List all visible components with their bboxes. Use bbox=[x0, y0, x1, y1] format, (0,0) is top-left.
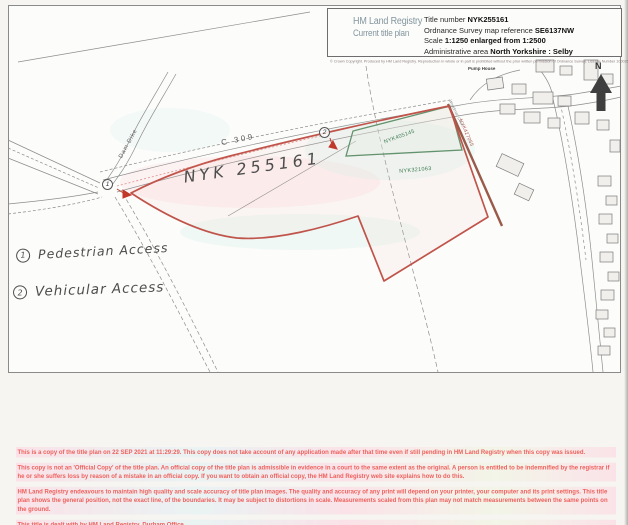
pump-house-label: Pump House bbox=[468, 66, 495, 71]
os-ref-value: SE6137NW bbox=[535, 26, 574, 35]
access-marker-1: 1 bbox=[102, 179, 113, 190]
header-panel: HM Land Registry Current title plan Titl… bbox=[327, 8, 622, 57]
notice-not-official-copy: This copy is not an 'Official Copy' of t… bbox=[16, 462, 616, 481]
title-number-row: Title number NYK255161 bbox=[424, 15, 574, 26]
brand-name: HM Land Registry bbox=[353, 16, 422, 28]
north-label: N bbox=[595, 61, 602, 71]
legend-2-number: 2 bbox=[13, 285, 27, 299]
access-marker-2: 2 bbox=[319, 127, 330, 138]
title-fields: Title number NYK255161 Ordnance Survey m… bbox=[424, 15, 574, 57]
scale-value: 1:1250 enlarged from 1:2500 bbox=[445, 36, 546, 45]
notice-copy-date: This is a copy of the title plan on 22 S… bbox=[16, 447, 616, 457]
scale-label: Scale bbox=[424, 36, 445, 45]
crown-copyright-line: © Crown Copyright. Produced by HM Land R… bbox=[330, 59, 621, 63]
document-type: Current title plan bbox=[353, 28, 422, 38]
title-number-label: Title number bbox=[424, 15, 468, 24]
admin-area-row: Administrative area North Yorkshire : Se… bbox=[424, 47, 574, 58]
scale-row: Scale 1:1250 enlarged from 1:2500 bbox=[424, 36, 574, 47]
brand-block: HM Land Registry Current title plan bbox=[353, 16, 422, 38]
legend-1-number: 1 bbox=[16, 248, 31, 263]
os-ref-row: Ordnance Survey map reference SE6137NW bbox=[424, 26, 574, 37]
os-ref-label: Ordnance Survey map reference bbox=[424, 26, 535, 35]
official-copy-notices: This is a copy of the title plan on 22 S… bbox=[16, 447, 616, 525]
notice-accuracy: HM Land Registry endeavours to maintain … bbox=[16, 487, 616, 515]
admin-area-label: Administrative area bbox=[424, 47, 490, 56]
notice-office: This title is dealt with by HM Land Regi… bbox=[16, 519, 616, 525]
admin-area-value: North Yorkshire : Selby bbox=[490, 47, 573, 56]
title-number-value: NYK255161 bbox=[468, 15, 509, 24]
title-plan-page: HM Land Registry Current title plan Titl… bbox=[0, 0, 628, 525]
